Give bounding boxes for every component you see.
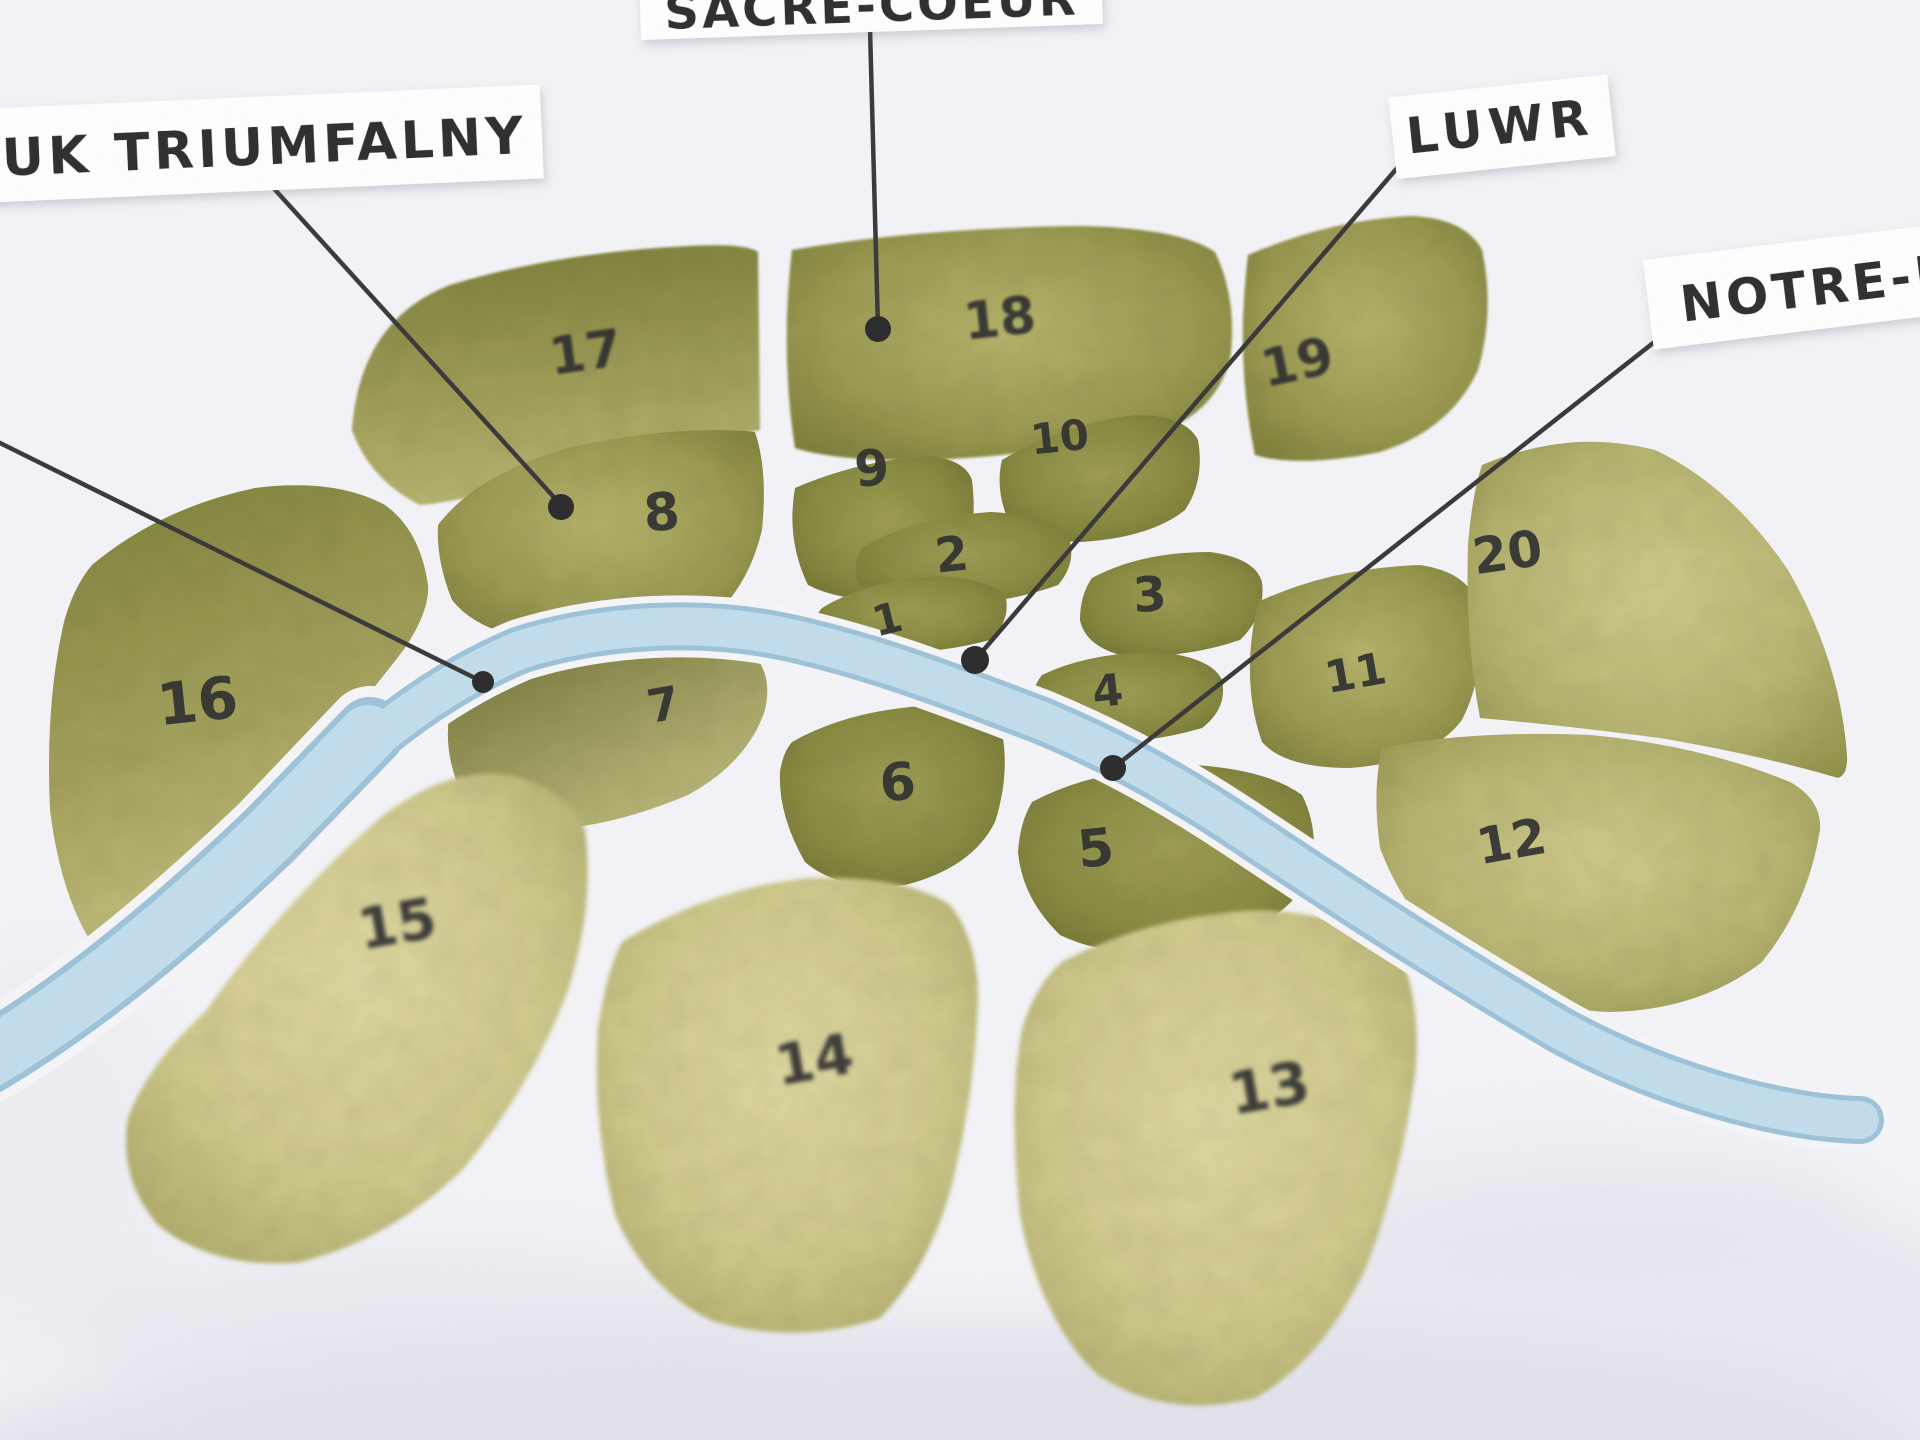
photo-of-hand-drawn-paris-map: 1 2 3 4 5 6 7 8 9 10 11 12 13 14 15 16 1… [0, 0, 1920, 1440]
photo-grain-overlay [0, 0, 1920, 1440]
map-illustration: 1 2 3 4 5 6 7 8 9 10 11 12 13 14 15 16 1… [0, 0, 1920, 1440]
